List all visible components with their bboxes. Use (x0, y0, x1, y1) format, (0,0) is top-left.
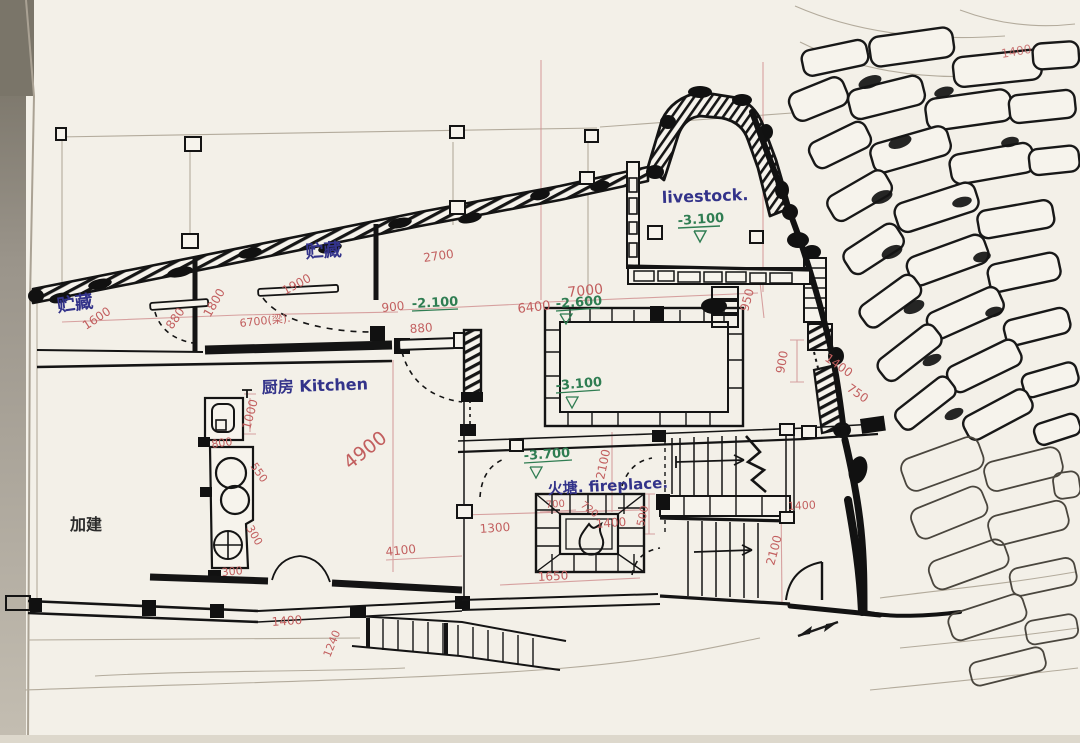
dim: 880 (409, 320, 433, 336)
label-addition: 加建 (69, 515, 102, 534)
dim: 1400 (787, 499, 816, 513)
label-livestock: livestock. (661, 185, 748, 207)
dim: 700 (545, 499, 565, 511)
dim: 1400 (595, 515, 626, 531)
dim: 1650 (537, 568, 568, 584)
floor-plan-svg: 贮藏 贮藏 厨房 Kitchen livestock. 火塘. fireplac… (0, 0, 1080, 743)
paper-background (0, 0, 1080, 743)
label-storage-mid: 贮藏 (304, 239, 342, 264)
dim: 900 (381, 299, 405, 315)
label-kitchen: 厨房 Kitchen (261, 374, 368, 397)
dim: 1400 (271, 613, 302, 629)
dim: 1300 (479, 520, 510, 536)
dim: 300 (221, 564, 243, 579)
floor-plan-sketch: 贮藏 贮藏 厨房 Kitchen livestock. 火塘. fireplac… (0, 0, 1080, 743)
